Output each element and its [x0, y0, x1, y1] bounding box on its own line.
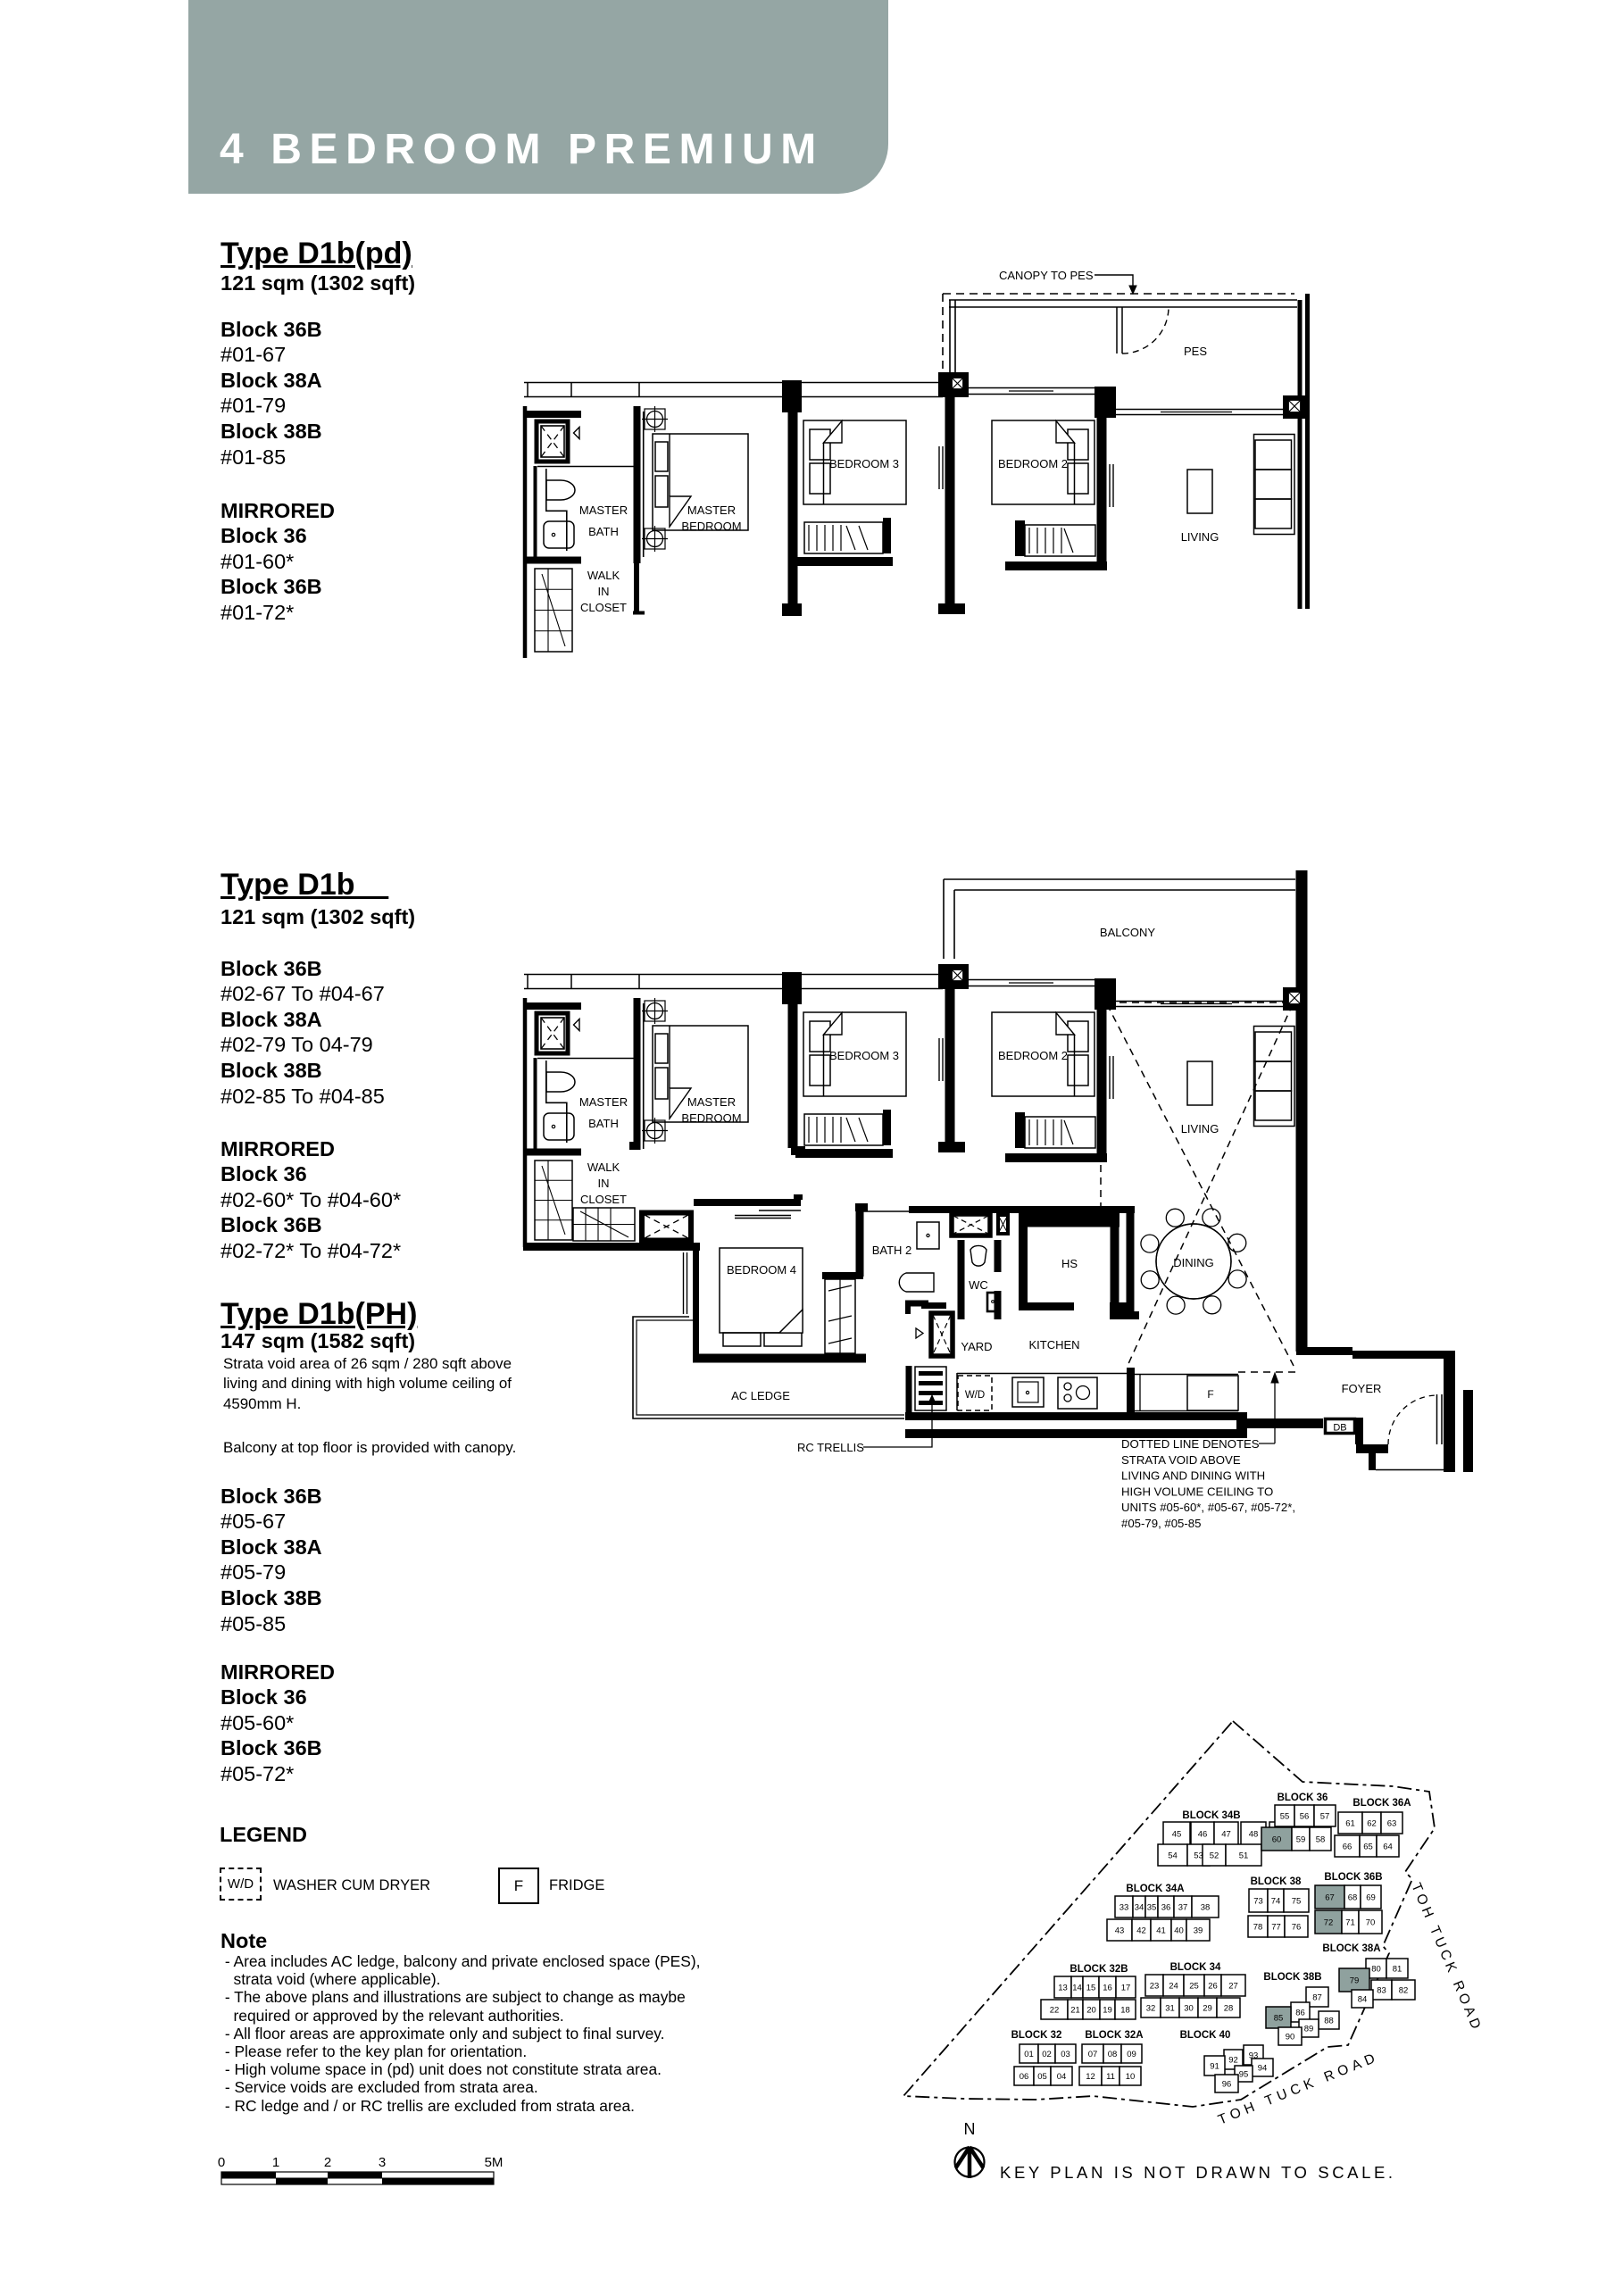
svg-text:32: 32 — [1146, 2004, 1156, 2014]
svg-text:80: 80 — [1371, 1965, 1381, 1975]
svg-text:01: 01 — [1024, 2050, 1034, 2059]
svg-text:96: 96 — [1222, 2080, 1232, 2090]
svg-text:IN: IN — [598, 1177, 610, 1190]
svg-text:BLOCK 32B: BLOCK 32B — [1070, 1964, 1128, 1975]
svg-text:05: 05 — [1037, 2072, 1047, 2082]
svg-text:#05-79, #05-85: #05-79, #05-85 — [1121, 1517, 1201, 1530]
svg-text:30: 30 — [1184, 2004, 1194, 2014]
svg-text:DOTTED LINE DENOTES: DOTTED LINE DENOTES — [1121, 1437, 1260, 1451]
svg-text:MASTER: MASTER — [687, 1095, 736, 1109]
svg-text:08: 08 — [1108, 2050, 1118, 2059]
svg-text:MASTER: MASTER — [687, 503, 736, 517]
svg-text:09: 09 — [1127, 2050, 1136, 2059]
svg-text:81: 81 — [1393, 1965, 1402, 1975]
svg-text:BLOCK 38B: BLOCK 38B — [1263, 1972, 1321, 1983]
svg-text:10: 10 — [1126, 2072, 1136, 2082]
svg-text:58: 58 — [1316, 1835, 1326, 1845]
svg-text:12: 12 — [1086, 2072, 1095, 2082]
svg-text:86: 86 — [1295, 2009, 1305, 2018]
svg-text:BLOCK 32: BLOCK 32 — [1011, 2030, 1062, 2041]
svg-text:BEDROOM: BEDROOM — [681, 520, 741, 533]
svg-text:69: 69 — [1366, 1893, 1376, 1903]
svg-text:DINING: DINING — [1173, 1256, 1214, 1269]
svg-text:46: 46 — [1198, 1830, 1208, 1840]
svg-text:85: 85 — [1274, 2014, 1284, 2024]
svg-text:89: 89 — [1304, 2025, 1314, 2034]
svg-text:BLOCK 32A: BLOCK 32A — [1085, 2030, 1143, 2041]
svg-text:3: 3 — [379, 2155, 386, 2170]
svg-text:LIVING: LIVING — [1181, 1122, 1219, 1136]
svg-text:72: 72 — [1324, 1918, 1334, 1928]
svg-text:78: 78 — [1253, 1923, 1263, 1933]
svg-text:64: 64 — [1383, 1843, 1393, 1852]
svg-text:15: 15 — [1086, 1984, 1096, 1993]
svg-text:92: 92 — [1228, 2056, 1238, 2066]
svg-text:CLOSET: CLOSET — [580, 601, 627, 614]
svg-text:53: 53 — [1194, 1851, 1203, 1861]
svg-text:WALK: WALK — [587, 569, 620, 582]
svg-text:48: 48 — [1249, 1830, 1259, 1840]
svg-text:5M: 5M — [485, 2155, 504, 2170]
svg-text:BLOCK 34: BLOCK 34 — [1170, 1962, 1221, 1973]
svg-text:61: 61 — [1345, 1819, 1355, 1829]
svg-text:20: 20 — [1086, 2006, 1096, 2016]
svg-text:95: 95 — [1239, 2070, 1249, 2080]
svg-text:74: 74 — [1271, 1897, 1281, 1907]
svg-text:40: 40 — [1174, 1926, 1184, 1936]
svg-text:BEDROOM 3: BEDROOM 3 — [829, 1049, 899, 1062]
svg-text:33: 33 — [1119, 1903, 1129, 1913]
svg-text:TOH TUCK ROAD: TOH TUCK ROAD — [1408, 1881, 1485, 2034]
svg-text:BLOCK 36B: BLOCK 36B — [1324, 1872, 1382, 1883]
svg-text:BLOCK 36: BLOCK 36 — [1278, 1793, 1328, 1803]
svg-text:29: 29 — [1203, 2004, 1212, 2014]
svg-text:WC: WC — [969, 1278, 988, 1292]
svg-text:66: 66 — [1343, 1843, 1352, 1852]
svg-text:CLOSET: CLOSET — [580, 1193, 627, 1206]
svg-text:83: 83 — [1377, 1986, 1386, 1996]
svg-text:BATH: BATH — [588, 525, 619, 538]
svg-text:51: 51 — [1239, 1851, 1249, 1861]
svg-text:23: 23 — [1150, 1982, 1160, 1992]
svg-text:WALK: WALK — [587, 1160, 620, 1174]
svg-text:77: 77 — [1271, 1923, 1281, 1933]
svg-text:38: 38 — [1201, 1903, 1211, 1913]
svg-text:YARD: YARD — [961, 1340, 992, 1353]
svg-text:68: 68 — [1348, 1893, 1358, 1903]
svg-text:94: 94 — [1258, 2064, 1268, 2074]
svg-text:57: 57 — [1320, 1812, 1330, 1822]
svg-text:CANOPY TO PES: CANOPY TO PES — [999, 269, 1094, 282]
svg-text:BLOCK 38A: BLOCK 38A — [1322, 1943, 1380, 1954]
svg-text:84: 84 — [1358, 1995, 1368, 2005]
svg-text:26: 26 — [1208, 1982, 1218, 1992]
svg-text:17: 17 — [1121, 1984, 1131, 1993]
svg-text:BATH: BATH — [588, 1117, 619, 1130]
svg-text:42: 42 — [1136, 1926, 1146, 1936]
svg-text:52: 52 — [1210, 1851, 1219, 1861]
svg-text:MASTER: MASTER — [579, 503, 628, 517]
svg-text:67: 67 — [1325, 1893, 1335, 1903]
svg-text:W/D: W/D — [965, 1390, 985, 1401]
svg-text:35: 35 — [1147, 1903, 1157, 1913]
svg-text:KEY PLAN IS NOT DRAWN TO SCALE: KEY PLAN IS NOT DRAWN TO SCALE. — [1000, 2163, 1396, 2182]
svg-text:KITCHEN: KITCHEN — [1028, 1338, 1079, 1352]
svg-text:LIVING: LIVING — [1181, 530, 1219, 544]
svg-text:36: 36 — [1161, 1903, 1171, 1913]
svg-text:55: 55 — [1280, 1812, 1290, 1822]
svg-text:HS: HS — [1061, 1257, 1078, 1270]
svg-text:BEDROOM 3: BEDROOM 3 — [829, 457, 899, 470]
svg-text:27: 27 — [1228, 1982, 1238, 1992]
svg-text:24: 24 — [1169, 1982, 1178, 1992]
svg-text:62: 62 — [1367, 1819, 1377, 1829]
svg-text:DB: DB — [1333, 1423, 1346, 1434]
svg-text:HIGH VOLUME CEILING TO: HIGH VOLUME CEILING TO — [1121, 1485, 1273, 1498]
svg-text:63: 63 — [1387, 1819, 1397, 1829]
svg-text:BLOCK 40: BLOCK 40 — [1180, 2030, 1231, 2041]
svg-text:39: 39 — [1194, 1926, 1203, 1936]
svg-text:56: 56 — [1300, 1812, 1310, 1822]
svg-text:79: 79 — [1350, 1976, 1360, 1986]
svg-text:02: 02 — [1042, 2050, 1052, 2059]
svg-text:31: 31 — [1165, 2004, 1175, 2014]
svg-text:BALCONY: BALCONY — [1100, 926, 1155, 939]
svg-text:22: 22 — [1050, 2006, 1060, 2016]
svg-text:82: 82 — [1399, 1986, 1409, 1996]
svg-text:AC LEDGE: AC LEDGE — [731, 1389, 790, 1402]
svg-text:13: 13 — [1058, 1984, 1068, 1993]
svg-text:25: 25 — [1189, 1982, 1199, 1992]
svg-text:90: 90 — [1286, 2033, 1295, 2042]
svg-text:RC TRELLIS: RC TRELLIS — [797, 1441, 864, 1454]
svg-text:MASTER: MASTER — [579, 1095, 628, 1109]
svg-text:41: 41 — [1156, 1926, 1166, 1936]
svg-text:54: 54 — [1168, 1851, 1178, 1861]
svg-text:F: F — [1207, 1388, 1213, 1401]
svg-text:BEDROOM 2: BEDROOM 2 — [998, 457, 1068, 470]
svg-text:BEDROOM 2: BEDROOM 2 — [998, 1049, 1068, 1062]
svg-text:STRATA VOID ABOVE: STRATA VOID ABOVE — [1121, 1453, 1241, 1467]
svg-text:88: 88 — [1324, 2017, 1334, 2026]
svg-text:UNITS #05-60*, #05-67, #05-72*: UNITS #05-60*, #05-67, #05-72*, — [1121, 1501, 1295, 1514]
svg-text:BEDROOM: BEDROOM — [681, 1111, 741, 1125]
svg-text:19: 19 — [1103, 2006, 1112, 2016]
svg-text:14: 14 — [1072, 1984, 1082, 1993]
svg-text:BEDROOM 4: BEDROOM 4 — [727, 1263, 796, 1277]
svg-text:70: 70 — [1366, 1918, 1376, 1928]
svg-text:BLOCK 36A: BLOCK 36A — [1352, 1798, 1411, 1809]
svg-text:59: 59 — [1296, 1835, 1306, 1845]
svg-text:07: 07 — [1088, 2050, 1098, 2059]
svg-text:N: N — [964, 2120, 976, 2138]
svg-text:0: 0 — [218, 2155, 225, 2170]
svg-text:IN: IN — [598, 585, 610, 598]
svg-text:BLOCK 34B: BLOCK 34B — [1182, 1810, 1240, 1821]
svg-text:75: 75 — [1292, 1897, 1302, 1907]
svg-text:76: 76 — [1292, 1923, 1302, 1933]
svg-text:1: 1 — [272, 2155, 279, 2170]
svg-text:34: 34 — [1135, 1903, 1144, 1913]
svg-text:28: 28 — [1224, 2004, 1234, 2014]
svg-text:87: 87 — [1312, 1993, 1322, 2003]
svg-text:04: 04 — [1057, 2072, 1067, 2082]
svg-text:73: 73 — [1253, 1897, 1263, 1907]
svg-text:PES: PES — [1184, 345, 1207, 358]
svg-text:BLOCK 38: BLOCK 38 — [1251, 1876, 1302, 1887]
svg-text:91: 91 — [1210, 2062, 1219, 2072]
svg-text:FOYER: FOYER — [1342, 1382, 1382, 1395]
svg-text:43: 43 — [1115, 1926, 1125, 1936]
svg-text:LIVING AND DINING WITH: LIVING AND DINING WITH — [1121, 1469, 1265, 1483]
svg-text:BATH 2: BATH 2 — [872, 1244, 912, 1257]
svg-text:16: 16 — [1103, 1984, 1112, 1993]
svg-text:47: 47 — [1221, 1830, 1231, 1840]
svg-text:37: 37 — [1178, 1903, 1188, 1913]
svg-text:65: 65 — [1363, 1843, 1373, 1852]
svg-text:18: 18 — [1120, 2006, 1130, 2016]
svg-text:BLOCK 34A: BLOCK 34A — [1126, 1884, 1184, 1894]
svg-text:2: 2 — [324, 2155, 331, 2170]
svg-text:60: 60 — [1272, 1835, 1282, 1845]
svg-text:03: 03 — [1061, 2050, 1070, 2059]
svg-text:21: 21 — [1070, 2006, 1080, 2016]
svg-text:71: 71 — [1345, 1918, 1355, 1928]
svg-text:11: 11 — [1106, 2072, 1115, 2082]
svg-text:45: 45 — [1172, 1830, 1182, 1840]
svg-text:06: 06 — [1020, 2072, 1029, 2082]
